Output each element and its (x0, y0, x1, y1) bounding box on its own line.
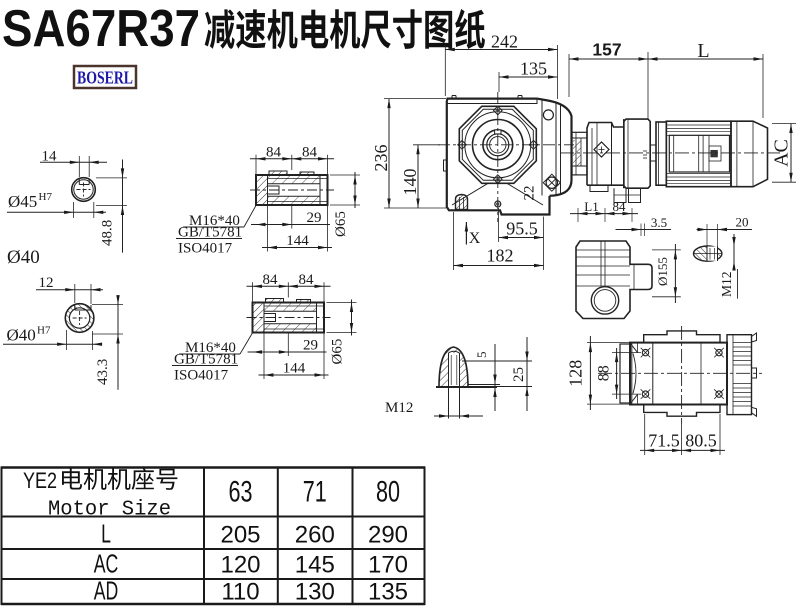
svg-text:144: 144 (283, 361, 306, 377)
svg-text:3.5: 3.5 (651, 215, 667, 230)
svg-text:29: 29 (303, 338, 318, 354)
svg-text:170: 170 (368, 552, 408, 579)
svg-text:Ø45: Ø45 (8, 192, 37, 211)
svg-text:84: 84 (613, 199, 627, 214)
svg-text:110: 110 (221, 579, 259, 606)
svg-text:Ø155: Ø155 (655, 257, 670, 286)
svg-text:L: L (101, 519, 111, 548)
svg-text:80: 80 (376, 474, 400, 508)
svg-text:135: 135 (368, 579, 408, 606)
svg-text:80.5: 80.5 (685, 431, 717, 451)
svg-text:ISO4017: ISO4017 (178, 241, 233, 257)
svg-text:Ø40: Ø40 (7, 326, 36, 345)
svg-text:Ø40: Ø40 (7, 247, 40, 268)
svg-text:120: 120 (220, 552, 260, 579)
svg-text:135: 135 (520, 59, 547, 79)
svg-text:260: 260 (295, 522, 335, 549)
svg-text:88: 88 (596, 365, 613, 381)
svg-text:M12: M12 (385, 400, 413, 416)
svg-text:M12: M12 (719, 271, 734, 297)
svg-text:290: 290 (368, 522, 408, 549)
svg-text:25: 25 (511, 367, 527, 382)
svg-text:71.5: 71.5 (648, 431, 680, 451)
svg-text:84: 84 (299, 272, 315, 288)
svg-text:12: 12 (39, 275, 54, 291)
svg-text:22: 22 (522, 186, 538, 201)
svg-text:242: 242 (491, 32, 518, 52)
svg-text:95.5: 95.5 (506, 219, 538, 239)
svg-text:ISO4017: ISO4017 (174, 368, 229, 384)
svg-text:BOSERL: BOSERL (77, 68, 133, 88)
svg-text:84: 84 (263, 272, 279, 288)
svg-text:182: 182 (487, 246, 514, 266)
svg-text:L1: L1 (584, 199, 598, 214)
svg-text:AD: AD (94, 576, 119, 605)
svg-text:84: 84 (302, 144, 318, 160)
svg-text:71: 71 (303, 474, 327, 508)
svg-text:H7: H7 (37, 325, 51, 337)
svg-text:140: 140 (400, 169, 420, 196)
svg-text:130: 130 (295, 579, 335, 606)
svg-text:X: X (469, 230, 481, 247)
svg-text:145: 145 (295, 552, 335, 579)
svg-text:128: 128 (566, 360, 586, 387)
svg-text:Ø65: Ø65 (330, 339, 346, 365)
svg-text:SA67R37: SA67R37 (2, 0, 200, 58)
svg-text:157: 157 (592, 40, 621, 60)
svg-text:Ø65: Ø65 (333, 211, 349, 237)
svg-text:Motor Size: Motor Size (48, 499, 171, 522)
svg-text:5: 5 (474, 352, 489, 359)
svg-text:205: 205 (220, 522, 260, 549)
svg-text:YE2: YE2 (23, 468, 57, 493)
svg-text:AC: AC (94, 549, 119, 578)
svg-text:84: 84 (266, 144, 282, 160)
svg-text:29: 29 (307, 210, 322, 226)
svg-text:48.8: 48.8 (100, 220, 116, 246)
svg-text:H7: H7 (39, 191, 53, 203)
svg-text:20: 20 (736, 215, 749, 230)
svg-text:236: 236 (371, 145, 391, 172)
svg-text:43.3: 43.3 (95, 359, 111, 385)
svg-text:144: 144 (286, 233, 309, 249)
svg-text:63: 63 (228, 474, 252, 508)
